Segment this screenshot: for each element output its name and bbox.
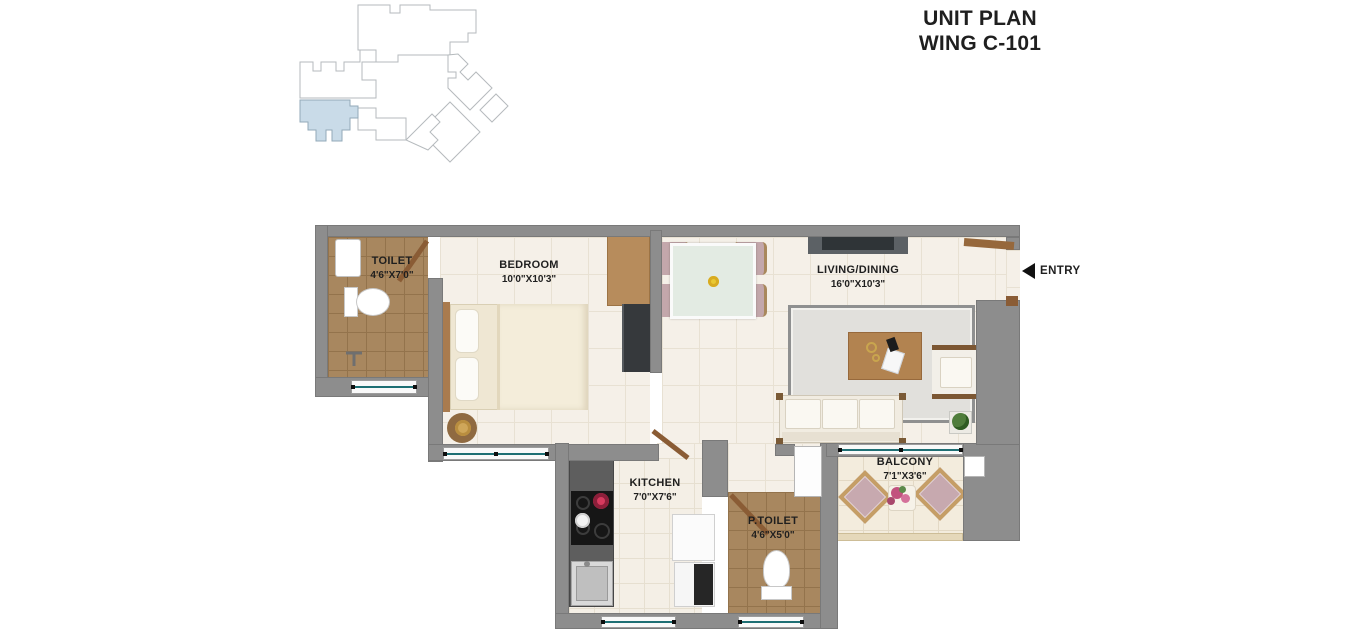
window-glass bbox=[604, 621, 673, 623]
kitchen-label: KITCHEN 7'0"X7'6" bbox=[595, 477, 715, 503]
wall-top bbox=[315, 225, 1020, 237]
balcony-label: BALCONY 7'1"X3'6" bbox=[855, 456, 955, 482]
wall-bedroom-partition bbox=[650, 230, 662, 373]
key-plan bbox=[280, 0, 510, 180]
p-toilet-tank bbox=[761, 586, 792, 600]
room-dims: 4'6"X5'0" bbox=[723, 530, 823, 542]
balcony-flower bbox=[901, 494, 910, 503]
bedside-lamp bbox=[455, 420, 471, 436]
armchair bbox=[932, 345, 980, 399]
keyplan-right-wing bbox=[448, 54, 492, 110]
p-toilet-label: P.TOILET 4'6"X5'0" bbox=[723, 515, 823, 541]
room-dims: 10'0"X10'3" bbox=[469, 274, 589, 286]
lobby-door bbox=[794, 446, 822, 497]
wall-kitchen-left bbox=[555, 443, 569, 629]
balcony-railing bbox=[826, 533, 963, 541]
coffee-table-decor-ring bbox=[872, 354, 880, 362]
window-end-dot bbox=[601, 620, 605, 624]
sofa-backrest bbox=[782, 432, 900, 441]
sofa-cushion bbox=[785, 399, 821, 429]
keyplan-left-wing bbox=[300, 50, 376, 98]
room-name: LIVING/DINING bbox=[788, 264, 928, 277]
title-line2: WING C-101 bbox=[880, 31, 1080, 56]
window-end-dot bbox=[545, 452, 549, 456]
armchair-cushion bbox=[940, 357, 972, 388]
wall-left bbox=[315, 225, 328, 397]
plant-leaves bbox=[952, 413, 969, 430]
wall-lobby-stub bbox=[775, 444, 795, 456]
window-glass bbox=[741, 621, 801, 623]
kitchen-plate bbox=[575, 513, 590, 528]
stove-burner bbox=[576, 496, 590, 510]
window-end-dot bbox=[959, 448, 963, 452]
kitchen-sink-basin bbox=[576, 566, 608, 601]
keyplan-corridor bbox=[358, 108, 406, 140]
room-dims: 7'1"X3'6" bbox=[855, 471, 955, 483]
p-toilet-window bbox=[738, 616, 804, 628]
sofa-cushion bbox=[822, 399, 858, 429]
room-name: KITCHEN bbox=[595, 477, 715, 490]
living-dining-label: LIVING/DINING 16'0"X10'3" bbox=[788, 264, 928, 290]
sofa-cushion bbox=[859, 399, 895, 429]
balcony-sliding-door bbox=[838, 444, 963, 455]
room-name: TOILET bbox=[337, 255, 447, 268]
toilet-bowl bbox=[356, 288, 390, 316]
window-end-dot bbox=[738, 620, 742, 624]
window-end-dot bbox=[672, 620, 676, 624]
window-end-dot bbox=[899, 448, 903, 452]
room-dims: 16'0"X10'3" bbox=[788, 279, 928, 291]
balcony-plant-leaf bbox=[899, 486, 906, 493]
title-line1: UNIT PLAN bbox=[880, 6, 1080, 31]
sofa bbox=[779, 395, 903, 443]
coffee-table-decor-ring bbox=[866, 342, 877, 353]
bedroom-window bbox=[443, 447, 549, 460]
bed-duvet bbox=[497, 304, 588, 410]
window-end-dot bbox=[351, 385, 355, 389]
balcony-flower bbox=[887, 497, 895, 505]
dining-table-flowers bbox=[708, 276, 719, 287]
window-glass bbox=[354, 386, 414, 388]
window-end-dot bbox=[494, 452, 498, 456]
window-end-dot bbox=[800, 620, 804, 624]
window-end-dot bbox=[838, 448, 842, 452]
bed-pillow-top bbox=[455, 309, 479, 353]
page-title: UNIT PLAN WING C-101 bbox=[880, 6, 1080, 56]
window-end-dot bbox=[443, 452, 447, 456]
p-toilet-bowl bbox=[763, 550, 790, 588]
keyplan-small-diamond bbox=[480, 94, 508, 122]
room-name: BALCONY bbox=[855, 456, 955, 469]
entry-label: ENTRY bbox=[1040, 265, 1081, 277]
entry-threshold-floor bbox=[1006, 250, 1020, 300]
room-dims: 7'0"X7'6" bbox=[595, 492, 715, 504]
tv-screen bbox=[822, 237, 894, 250]
keyplan-highlight-unit bbox=[300, 100, 358, 141]
room-name: BEDROOM bbox=[469, 259, 589, 272]
room-dims: 4'6"X7'0" bbox=[337, 270, 447, 282]
stove-burner bbox=[594, 523, 610, 539]
kitchen-window bbox=[601, 616, 676, 628]
toilet-label: TOILET 4'6"X7'0" bbox=[337, 255, 447, 281]
bed-pillow-bottom bbox=[455, 357, 479, 401]
toilet-window bbox=[351, 380, 417, 394]
room-name: P.TOILET bbox=[723, 515, 823, 528]
bedroom-label: BEDROOM 10'0"X10'3" bbox=[469, 259, 589, 285]
entry-arrow-icon bbox=[1022, 263, 1035, 279]
kitchen-fridge bbox=[672, 514, 715, 561]
wall-right-block bbox=[976, 300, 1020, 445]
sofa-foot bbox=[776, 393, 783, 400]
bedroom-tv-panel bbox=[622, 304, 650, 372]
kitchen-oven-door bbox=[694, 564, 713, 605]
window-end-dot bbox=[413, 385, 417, 389]
sofa-foot bbox=[899, 393, 906, 400]
floor-plan-page: UNIT PLAN WING C-101 bbox=[0, 0, 1366, 640]
wall-right-top-stub bbox=[1006, 237, 1020, 250]
wall-toilet-right bbox=[428, 278, 443, 462]
kitchen-faucet bbox=[584, 561, 590, 567]
service-shaft bbox=[964, 456, 985, 477]
bedroom-desk bbox=[607, 236, 650, 306]
